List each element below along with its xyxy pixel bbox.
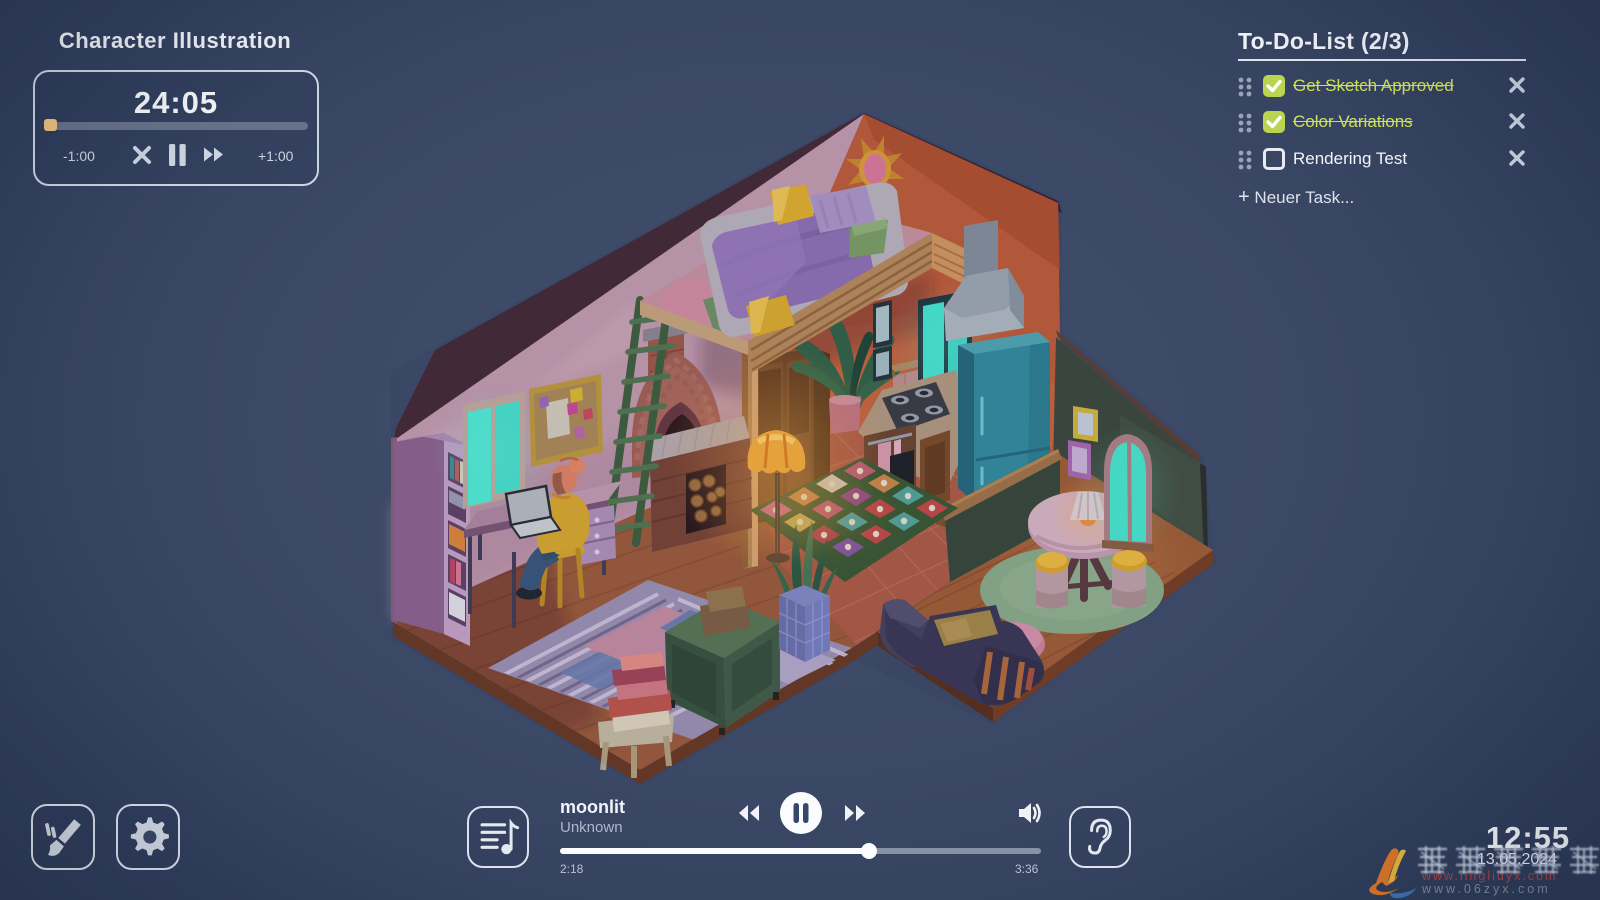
svg-text:www.06zyx.com: www.06zyx.com — [1421, 882, 1551, 896]
svg-text:www.lingliuyx.com: www.lingliuyx.com — [1421, 869, 1557, 883]
